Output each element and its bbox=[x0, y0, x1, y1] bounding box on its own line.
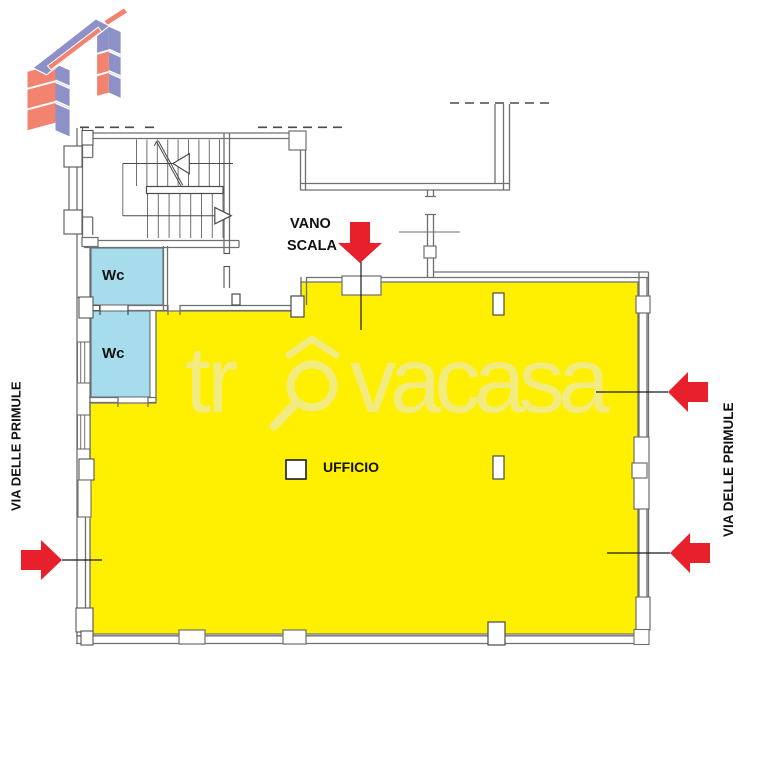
svg-text:SCALA: SCALA bbox=[287, 238, 337, 254]
svg-text:UFFICIO: UFFICIO bbox=[323, 459, 379, 475]
svg-text:VIA DELLE PRIMULE: VIA DELLE PRIMULE bbox=[721, 402, 736, 537]
svg-text:VIA DELLE PRIMULE: VIA DELLE PRIMULE bbox=[9, 381, 24, 511]
svg-text:VANO: VANO bbox=[290, 216, 331, 232]
svg-text:Wc: Wc bbox=[102, 345, 125, 362]
svg-text:Wc: Wc bbox=[102, 267, 125, 284]
svg-text:vacasa: vacasa bbox=[350, 328, 610, 432]
svg-text:tr: tr bbox=[185, 327, 237, 432]
